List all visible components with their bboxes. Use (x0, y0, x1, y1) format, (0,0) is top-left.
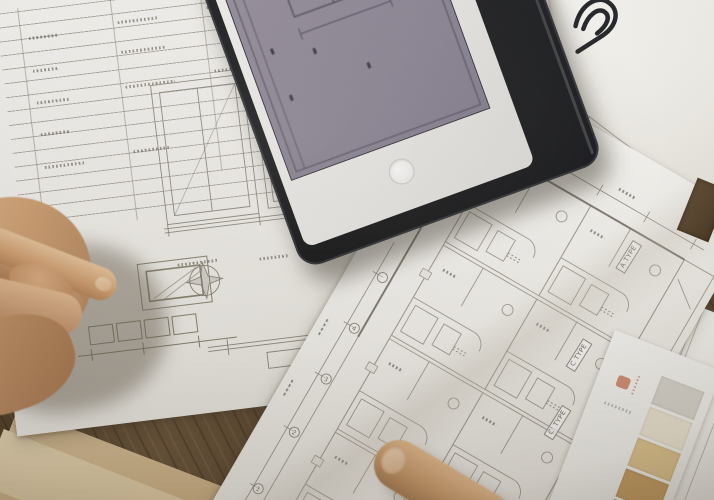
grid-marker: 3 (319, 372, 334, 387)
grid-marker: 1 (251, 481, 266, 496)
grid-marker: 4 (347, 321, 362, 336)
photo-blueprints-desk: A TYPE C TYPE C' TYPE 1 2 3 4 (0, 0, 714, 500)
type-label-c: C TYPE (566, 338, 593, 372)
fingernail (93, 274, 115, 294)
maker-stamp-logo (615, 375, 631, 391)
grid-marker: 2 (287, 425, 302, 440)
text-smudge (259, 254, 289, 260)
type-label-a: A TYPE (615, 240, 642, 274)
stamp-text-smudge (631, 375, 640, 395)
left-hand (0, 0, 240, 430)
text-smudge (604, 401, 633, 414)
type-label-c-prime: C' TYPE (544, 405, 572, 441)
grid-marker (375, 270, 390, 285)
home-button (385, 155, 418, 188)
